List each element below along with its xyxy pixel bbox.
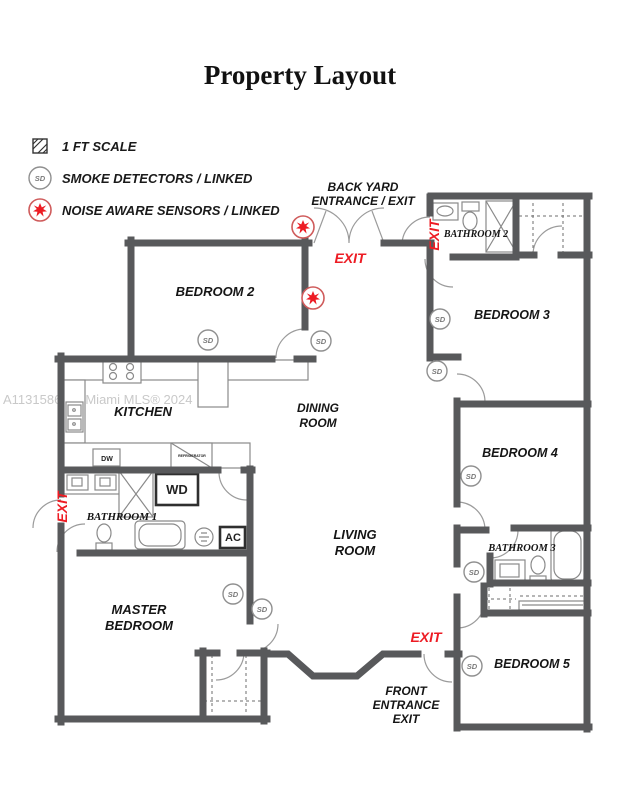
legend-smoke-label: SMOKE DETECTORS / LINKED [62,171,253,186]
stove-icon [103,361,141,383]
fixture-label-dishwasher: DW [101,456,113,463]
svg-text:SD: SD [466,472,477,481]
floorplan-canvas: Property Layout 1 FT SCALE SD SMOKE DETE… [0,0,621,804]
room-label-master-bedroom: MASTERBEDROOM [105,602,174,633]
smoke-detector-marker: SD [198,330,218,350]
room-label-dining-room: DININGROOM [297,401,339,430]
bathtub-icon [135,521,185,549]
kitchen-sink-icon [66,402,83,432]
room-label-bedroom-3: BEDROOM 3 [474,308,550,322]
svg-text:SD: SD [432,367,443,376]
fixture-label-ac-unit: AC [225,532,241,544]
svg-text:SD: SD [203,336,214,345]
bathroom3-vanity-icon [495,560,525,582]
page-title: Property Layout [204,60,396,90]
bathroom1-hall-door-arc [219,472,247,500]
bathroom2-closet-door-arc [533,226,562,255]
smoke-detector-marker: SD [462,656,482,676]
bathroom3-tub-icon [551,528,584,582]
smoke-detector-marker: SD [427,361,447,381]
room-label-bathroom-3: BATHROOM 3 [487,543,555,554]
kitchen-counter-bottom [64,443,250,468]
exit-back-yard: EXIT [334,250,367,266]
property-layout-page: { "title": "Property Layout", "watermark… [0,0,621,804]
room-label-bedroom-2: BEDROOM 2 [176,284,256,299]
bathroom2-sink-icon [433,203,458,220]
bathroom2-shower-icon [486,201,516,252]
fixture-label-washer-dryer: WD [166,482,188,497]
bedroom2-door-arc [276,329,305,358]
bedroom3-hall-door-arc [457,374,485,402]
bathroom2-toilet-icon [462,202,479,230]
room-label-kitchen: KITCHEN [114,404,172,419]
smoke-detector-marker: SD [430,309,450,329]
legend-scale-label: 1 FT SCALE [62,139,137,154]
toilet-icon [96,524,112,550]
scale-swatch-icon [33,139,47,153]
svg-text:SD: SD [435,315,446,324]
smoke-detector-marker: SD [464,562,484,582]
front-door-arc [424,654,452,682]
room-label-bathroom-1: BATHROOM 1 [86,511,158,523]
legend: 1 FT SCALE SD SMOKE DETECTORS / LINKED N… [29,139,280,221]
bathroom1-vanity-icon [64,472,121,494]
exit-bathroom-2: EXIT [426,218,442,251]
svg-text:SD: SD [467,662,478,671]
smoke-detector-marker: SD [252,599,272,619]
noise-sensor-icon [29,199,51,221]
smoke-detector-marker: SD [311,331,331,351]
exit-front: EXIT [410,629,443,645]
smoke-detector-marker: SD [223,584,243,604]
svg-text:SD: SD [316,337,327,346]
bathroom3-toilet-icon [530,556,546,583]
backyard-double-door-arcs [314,208,384,243]
noise-sensor-marker [292,216,314,238]
room-label-living-room: LIVINGROOM [333,527,376,558]
noise-sensor-marker [302,287,324,309]
svg-text:SD: SD [35,174,46,183]
exit-bathroom-1: EXIT [54,490,70,523]
water-heater-icon [195,528,213,546]
room-label-bedroom-4: BEDROOM 4 [482,446,558,460]
smoke-detector-icon: SD [29,167,51,189]
svg-text:SD: SD [257,605,268,614]
fixture-label-refrigerator: REFRIGERATOR [178,454,206,458]
svg-text:SD: SD [228,590,239,599]
smoke-detector-marker: SD [461,466,481,486]
entrance-label-back-yard-entrance: BACK YARDENTRANCE / EXIT [311,180,416,208]
bedroom4-door-arc [457,502,485,530]
room-label-bedroom-5: BEDROOM 5 [494,657,571,671]
kitchen-peninsula [198,360,228,407]
legend-noise-label: NOISE AWARE SENSORS / LINKED [62,203,280,218]
svg-text:SD: SD [469,568,480,577]
entrance-label-front-entrance: FRONTENTRANCEEXIT [373,684,441,726]
closet-shelf-icon [519,601,585,610]
kitchen-counter-top [64,360,308,380]
room-label-bathroom-2: BATHROOM 2 [443,229,508,240]
